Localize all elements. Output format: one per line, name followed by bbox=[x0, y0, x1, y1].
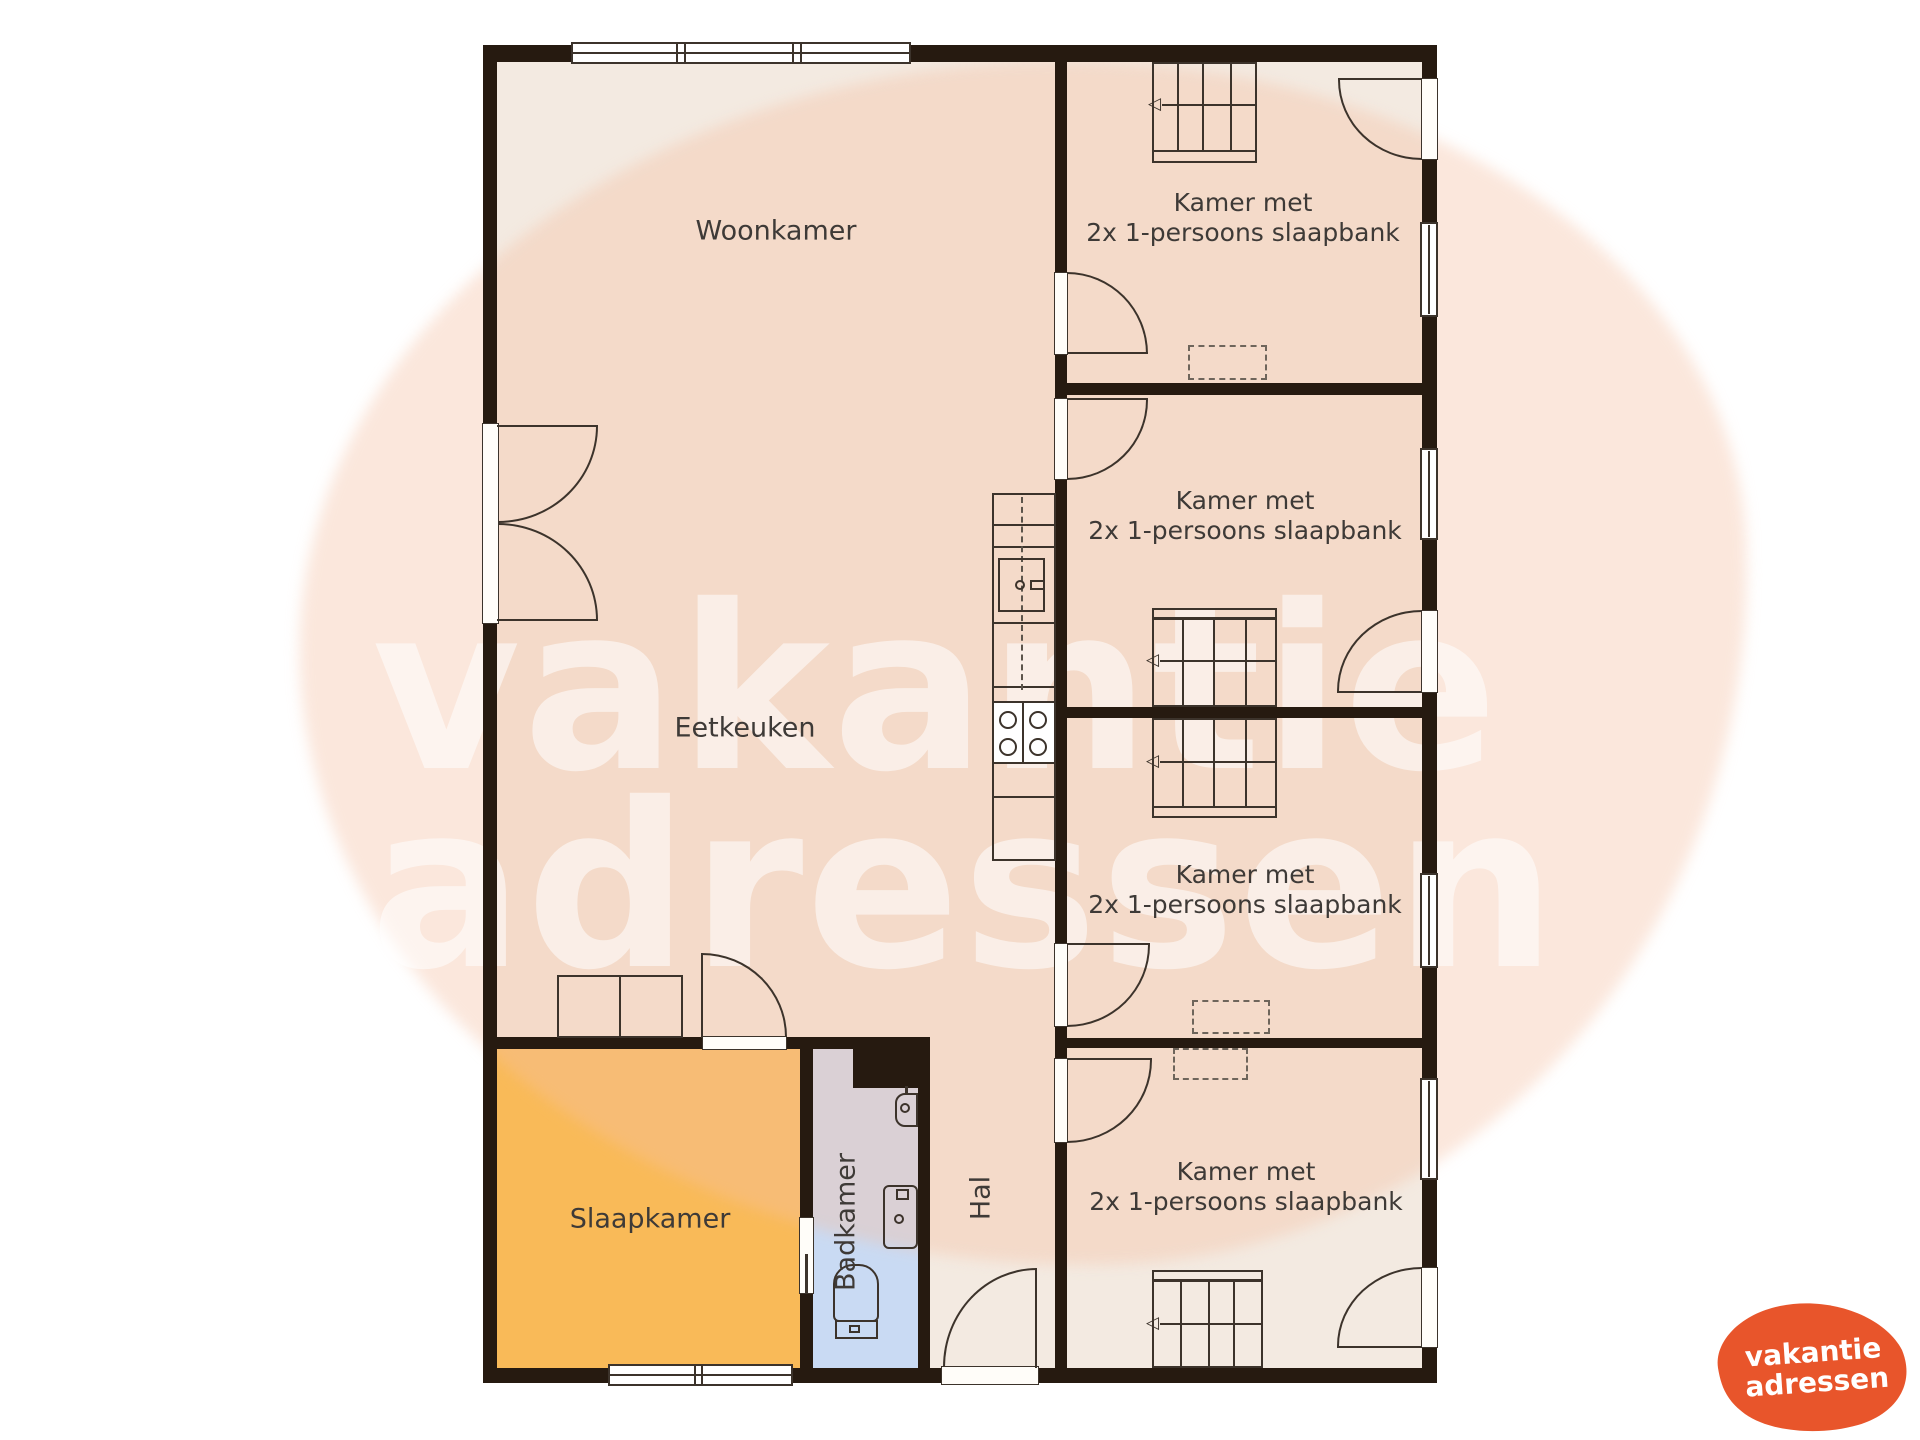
door-leaf bbox=[1337, 1346, 1422, 1348]
wall-left bbox=[483, 45, 497, 1383]
label-eetkeuken: Eetkeuken bbox=[674, 713, 815, 744]
door-opening bbox=[1054, 398, 1068, 480]
door-leaf bbox=[1067, 398, 1148, 400]
door-leaf bbox=[1067, 352, 1148, 354]
door-opening bbox=[482, 423, 499, 624]
door-leaf bbox=[1338, 78, 1422, 80]
label-badkamer: Badkamer bbox=[831, 1153, 862, 1291]
vent-dashed-box bbox=[1192, 1000, 1270, 1034]
door-leaf bbox=[805, 1254, 808, 1293]
door-opening bbox=[941, 1366, 1039, 1385]
label-guest-room-2: Kamer met2x 1-persoons slaapbank bbox=[1088, 486, 1402, 546]
vent-dashed-box bbox=[1173, 1048, 1248, 1080]
stair-tread bbox=[1230, 62, 1232, 150]
stair-direction-arrow-icon: ◁ bbox=[1148, 96, 1161, 113]
door-opening bbox=[702, 1036, 787, 1050]
stair-tread bbox=[1202, 62, 1204, 150]
door-opening bbox=[1054, 272, 1068, 355]
door-opening bbox=[1421, 1267, 1438, 1348]
wall-room2-room3 bbox=[1067, 707, 1422, 718]
wall-bathroom-notch bbox=[853, 1049, 930, 1088]
stair-tread bbox=[1182, 618, 1184, 707]
burner-icon bbox=[1029, 711, 1047, 729]
label-guest-room-3: Kamer met2x 1-persoons slaapbank bbox=[1088, 860, 1402, 920]
label-slaapkamer: Slaapkamer bbox=[570, 1204, 731, 1235]
logo[interactable]: vakantie adressen bbox=[1712, 1296, 1912, 1434]
stair-direction-arrow-icon: ◁ bbox=[1146, 753, 1159, 770]
door-leaf bbox=[1067, 943, 1150, 945]
door-leaf bbox=[1067, 1058, 1152, 1060]
label-hal: Hal bbox=[966, 1176, 997, 1220]
door-leaf bbox=[1337, 691, 1422, 693]
wall-central bbox=[1055, 62, 1067, 1368]
door-opening bbox=[1421, 78, 1438, 160]
stair-tread bbox=[1177, 62, 1179, 150]
label-guest-room-1: Kamer met2x 1-persoons slaapbank bbox=[1086, 188, 1400, 248]
door-leaf bbox=[1035, 1268, 1037, 1368]
burner-icon bbox=[1029, 738, 1047, 756]
wall-room3-room4 bbox=[1067, 1038, 1422, 1048]
stair-direction-arrow-icon: ◁ bbox=[1146, 652, 1159, 669]
floor-plan: vakantie adressen bbox=[0, 0, 1920, 1440]
door-leaf bbox=[701, 953, 703, 1038]
wall-bathroom-right bbox=[918, 1088, 930, 1368]
door-opening bbox=[1054, 943, 1068, 1027]
wall-room1-room2 bbox=[1067, 383, 1422, 395]
vent-dashed-box bbox=[1188, 345, 1267, 380]
label-woonkamer: Woonkamer bbox=[696, 216, 857, 247]
stair-tread bbox=[1245, 618, 1247, 707]
wall-bathroom-left bbox=[800, 1049, 813, 1368]
stair-direction-arrow-icon: ◁ bbox=[1146, 1315, 1159, 1332]
stair-tread bbox=[1213, 618, 1215, 707]
door-opening bbox=[1421, 610, 1438, 693]
burner-icon bbox=[999, 738, 1017, 756]
burner-icon bbox=[999, 711, 1017, 729]
label-guest-room-4: Kamer met2x 1-persoons slaapbank bbox=[1089, 1157, 1403, 1217]
door-opening bbox=[1054, 1058, 1068, 1143]
